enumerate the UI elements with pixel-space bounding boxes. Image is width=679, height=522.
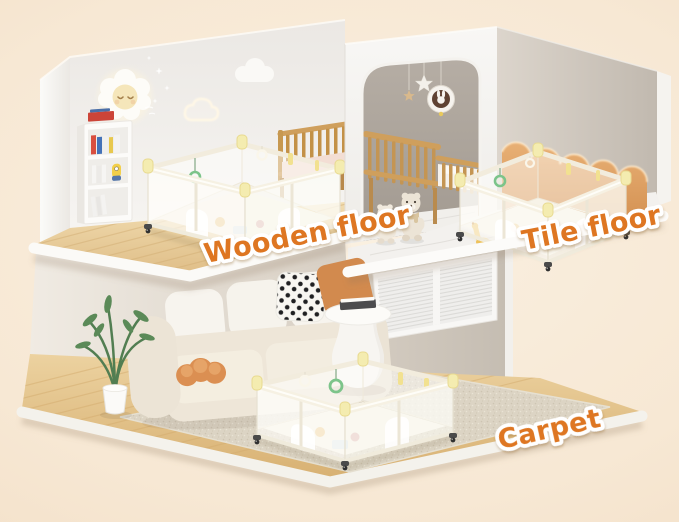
product-scene: Wooden floor Tile floor Carpet [0,0,679,522]
hanging-strap-yellow [398,372,403,385]
books-bottom-shelf [91,194,107,216]
wall-corner-edge [505,248,513,390]
hanging-strap-yellow [288,153,293,165]
room-illustration: Wooden floor Tile floor Carpet [0,0,679,522]
bookshelf [77,107,132,225]
books-top-shelf [91,133,120,154]
nursery-left-wall [40,58,70,254]
hanging-strap-yellow [566,163,571,175]
right-wall-edge [657,71,671,206]
red-book-on-top [88,111,114,122]
